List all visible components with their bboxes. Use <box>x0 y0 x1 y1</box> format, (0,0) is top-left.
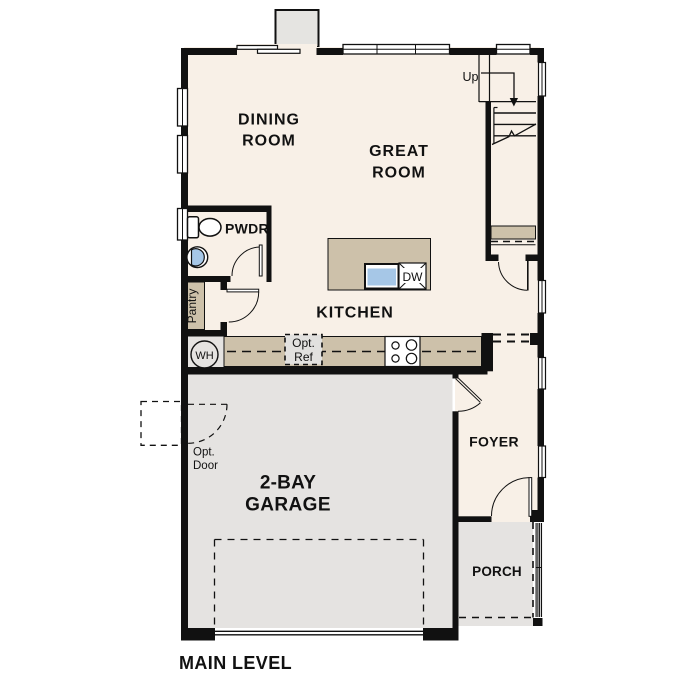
svg-text:Opt.: Opt. <box>193 447 215 459</box>
svg-text:2-BAY: 2-BAY <box>260 473 316 494</box>
svg-text:PORCH: PORCH <box>472 564 522 579</box>
svg-text:MAIN LEVEL: MAIN LEVEL <box>179 653 292 673</box>
svg-text:ROOM: ROOM <box>372 165 426 182</box>
svg-text:Opt.: Opt. <box>292 336 315 350</box>
svg-text:Up: Up <box>463 70 479 84</box>
svg-text:FOYER: FOYER <box>469 434 519 450</box>
svg-text:KITCHEN: KITCHEN <box>316 305 393 322</box>
svg-text:GREAT: GREAT <box>369 143 429 160</box>
svg-text:WH: WH <box>195 350 213 362</box>
svg-text:DW: DW <box>403 270 424 284</box>
svg-text:DINING: DINING <box>238 112 300 129</box>
svg-text:Door: Door <box>193 460 218 472</box>
svg-text:Ref: Ref <box>294 350 313 364</box>
svg-text:GARAGE: GARAGE <box>245 495 331 516</box>
svg-text:ROOM: ROOM <box>242 133 296 150</box>
svg-text:PWDR: PWDR <box>225 221 269 237</box>
